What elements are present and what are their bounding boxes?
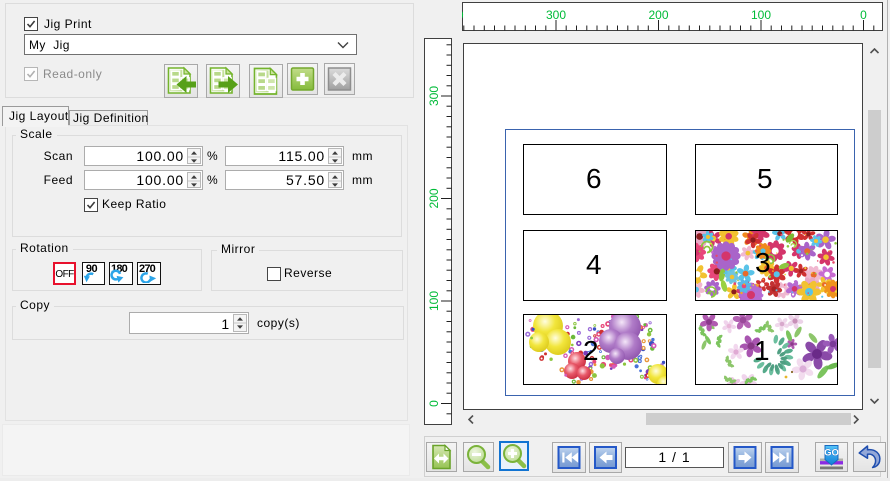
svg-text:0: 0 [860, 8, 867, 22]
svg-text:100: 100 [427, 291, 441, 311]
svg-text:200: 200 [648, 8, 668, 22]
svg-text:GO: GO [824, 448, 839, 459]
svg-text:300: 300 [427, 86, 441, 106]
svg-text:0: 0 [427, 400, 441, 407]
svg-text:100: 100 [751, 8, 771, 22]
svg-text:200: 200 [427, 188, 441, 208]
svg-text:300: 300 [546, 8, 566, 22]
